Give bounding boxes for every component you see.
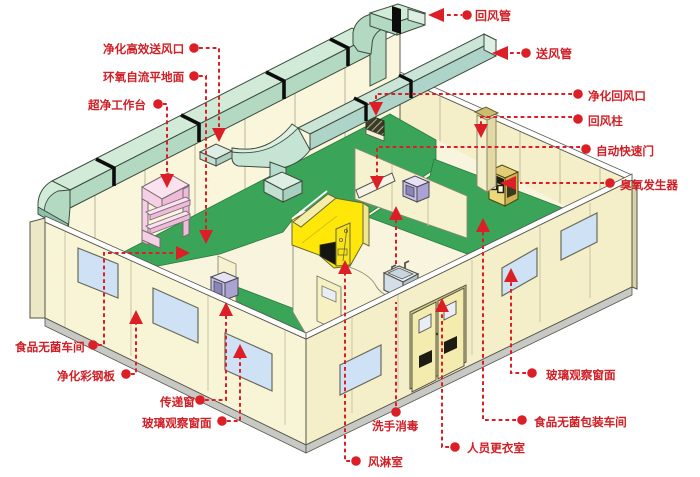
svg-text:超净工作台: 超净工作台	[87, 98, 146, 112]
svg-text:传递窗: 传递窗	[159, 395, 195, 409]
svg-text:臭氧发生器: 臭氧发生器	[620, 178, 678, 192]
svg-text:环氧自流平地面: 环氧自流平地面	[103, 70, 185, 84]
svg-text:自动快速门: 自动快速门	[596, 144, 654, 158]
svg-text:回风柱: 回风柱	[588, 114, 623, 128]
svg-text:风淋室: 风淋室	[368, 455, 403, 469]
svg-text:食品无菌车间: 食品无菌车间	[15, 340, 85, 354]
svg-text:净化彩钢板: 净化彩钢板	[57, 369, 115, 383]
svg-text:食品无菌包装车间: 食品无菌包装车间	[534, 415, 627, 429]
svg-text:玻璃观察窗面: 玻璃观察窗面	[546, 368, 616, 382]
svg-text:洗手消毒: 洗手消毒	[372, 419, 419, 433]
svg-text:净化高效送风口: 净化高效送风口	[103, 42, 184, 56]
svg-text:玻璃观察窗面: 玻璃观察窗面	[142, 416, 212, 430]
svg-text:送风管: 送风管	[535, 46, 572, 61]
svg-text:人员更衣室: 人员更衣室	[467, 441, 525, 455]
svg-text:净化回风口: 净化回风口	[588, 89, 646, 103]
svg-text:回风管: 回风管	[475, 8, 511, 23]
